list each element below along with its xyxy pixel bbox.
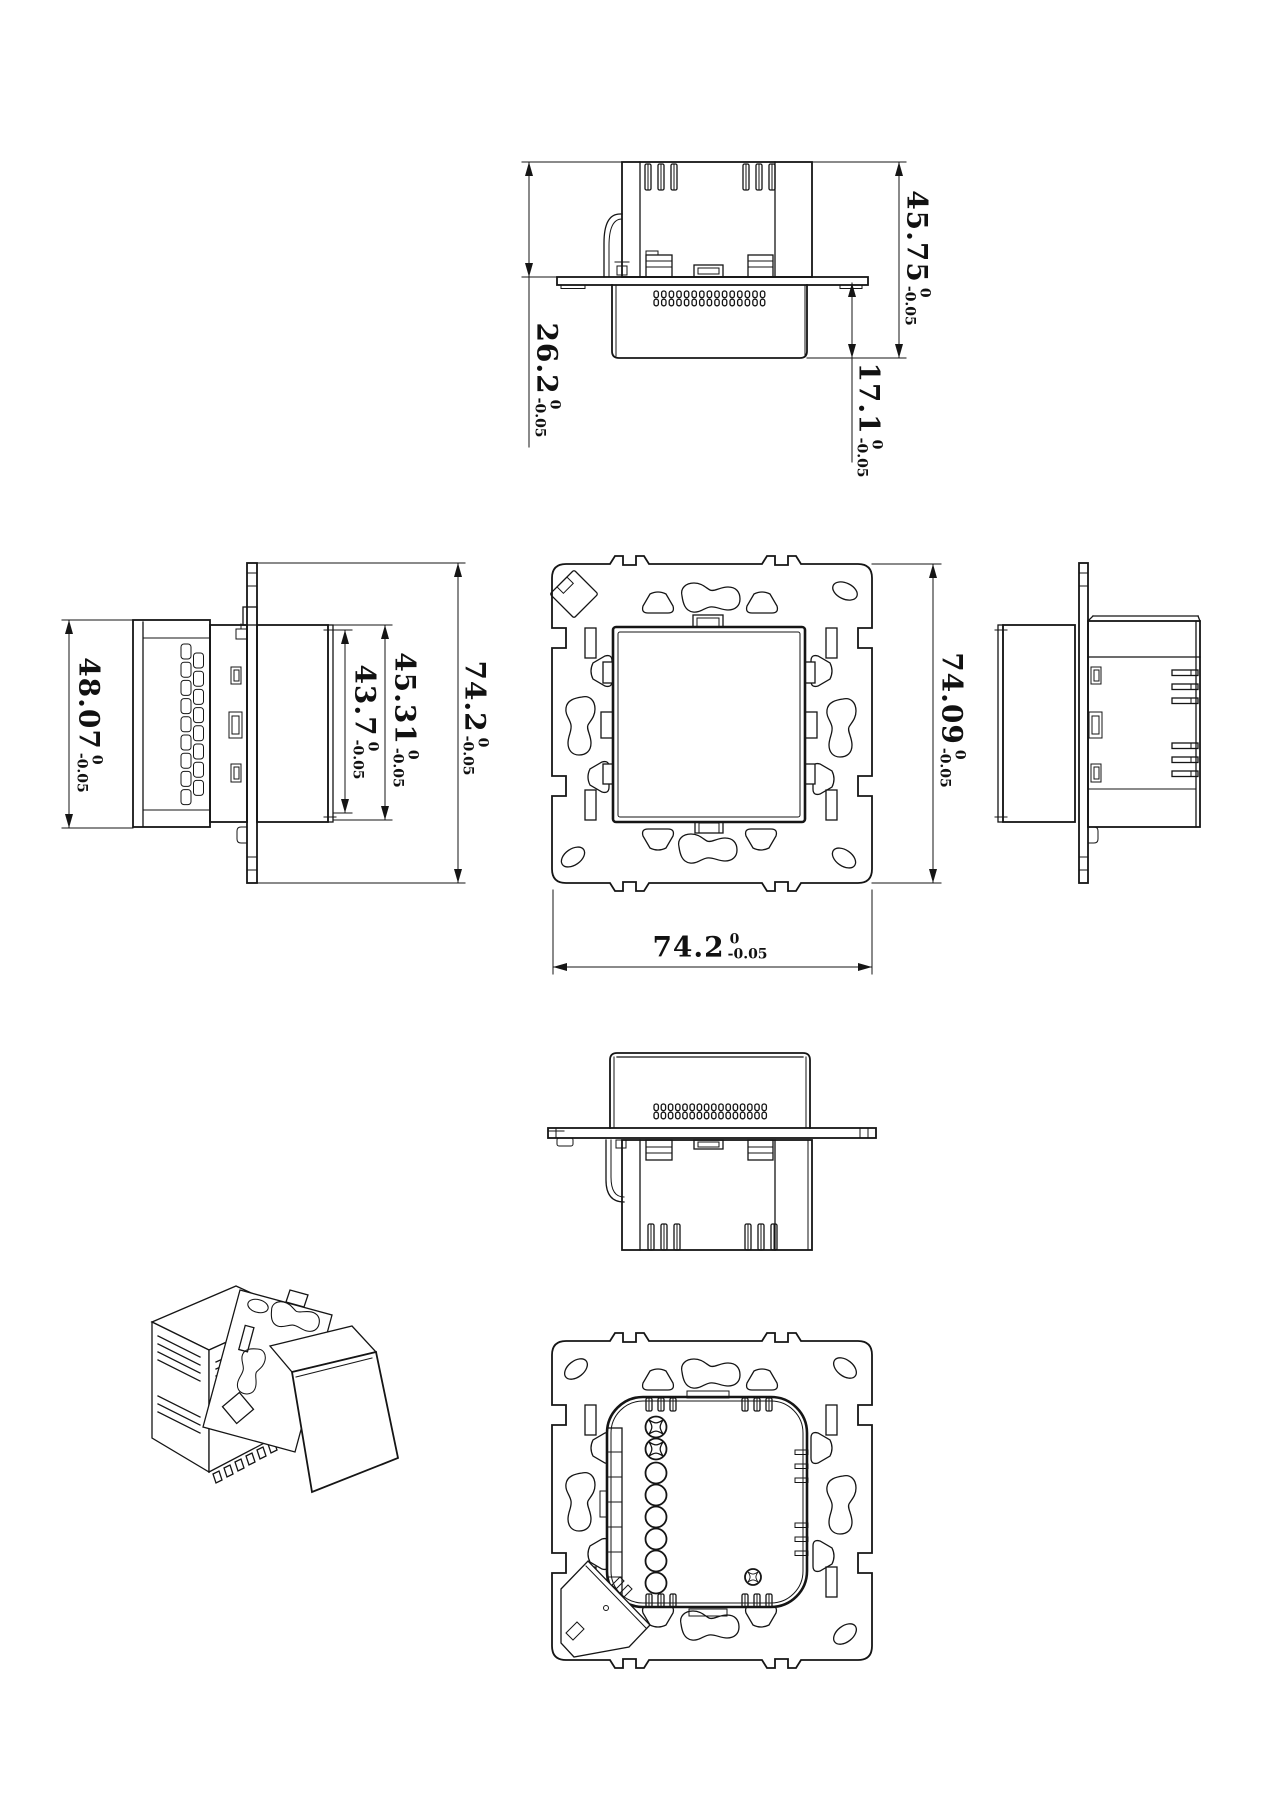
module-back-face (607, 1397, 807, 1607)
tolerance: 0 -0.05 (853, 438, 884, 478)
dim-cover-height: 45.31 0 -0.05 (389, 652, 420, 788)
tolerance: 0 -0.05 (73, 753, 104, 793)
engineering-drawing (0, 0, 1273, 1800)
side-vent-slots (1172, 670, 1198, 777)
dim-frame-height: 74.09 0 -0.05 (936, 652, 967, 788)
dim-body-height: 26.2 0 -0.05 (531, 322, 562, 437)
tolerance: 0 -0.05 (936, 748, 967, 788)
bottom-side-view (548, 1053, 876, 1250)
switch-cover-face (613, 627, 805, 822)
tolerance: 0 -0.05 (389, 748, 420, 788)
dim-frame-height-left: 74.2 0 -0.05 (459, 660, 490, 775)
tolerance: 0 -0.05 (901, 286, 932, 326)
dim-face-height: 43.7 0 -0.05 (349, 664, 380, 779)
tolerance: 0 -0.05 (459, 736, 490, 776)
isometric-view (152, 1286, 398, 1492)
back-view (552, 1333, 872, 1668)
dim-module-height: 48.07 0 -0.05 (73, 657, 104, 793)
vent-row (654, 291, 765, 306)
top-side-view (557, 162, 868, 358)
dim-overall-height: 45.75 0 -0.05 (901, 190, 932, 326)
right-side-view (995, 563, 1200, 883)
vent-row (654, 1104, 766, 1119)
drawing-canvas: 26.2 0 -0.05 45.75 0 -0.05 17.1 0 -0.05 … (0, 0, 1273, 1800)
dim-cover-depth: 17.1 0 -0.05 (853, 362, 884, 477)
left-side-view (133, 563, 336, 883)
tolerance: 0 -0.05 (728, 933, 768, 964)
dim-frame-width: 74.2 0 -0.05 (652, 933, 767, 964)
tolerance: 0 -0.05 (349, 740, 380, 780)
heatsink-fins (181, 644, 204, 805)
tolerance: 0 -0.05 (531, 398, 562, 438)
bottom-slot-groups (648, 1224, 777, 1250)
top-slot-groups (645, 164, 775, 190)
front-view (550, 556, 872, 891)
